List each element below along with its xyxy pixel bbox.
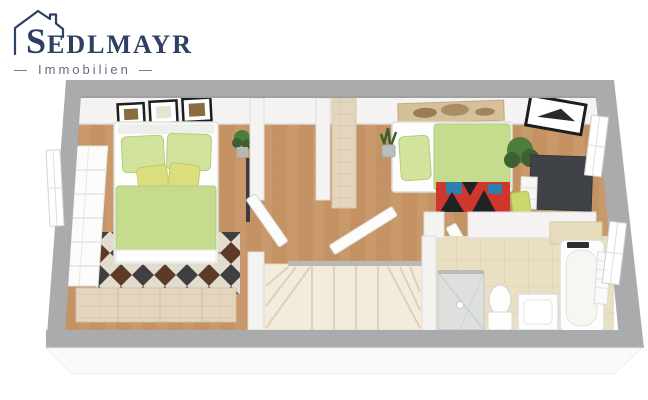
wall-bedroom2-bathroom-left: [424, 212, 444, 238]
stair-nosing: [288, 261, 422, 266]
wall-hall-bedroom2: [316, 98, 330, 200]
south-wall: [46, 330, 642, 348]
logo-tagline: — Immobilien —: [10, 62, 190, 77]
patterned-rug: [436, 182, 510, 212]
sideboard: [76, 288, 236, 322]
pillow: [399, 135, 432, 181]
sink-vanity: [518, 294, 558, 330]
tagline-text: Immobilien: [38, 62, 131, 77]
desk: [520, 155, 593, 211]
wall-bedroom1-hall-lower: [248, 252, 264, 330]
tagline-dash-left: —: [14, 62, 30, 77]
shower: [438, 270, 484, 330]
single-bed: [392, 122, 512, 192]
radiator-strip: [246, 158, 250, 222]
floor-slab-edge: [46, 348, 642, 374]
toilet: [488, 285, 512, 330]
staircase: [264, 261, 422, 330]
logo-wordmark: SEDLMAYR: [26, 20, 193, 62]
logo-initial: S: [26, 21, 47, 61]
logo-rest: EDLMAYR: [47, 30, 193, 59]
tall-wardrobe: [332, 98, 356, 208]
panoramic-artwork: [398, 100, 505, 124]
north-wall: [66, 80, 596, 98]
duvet: [116, 186, 216, 252]
company-logo: SEDLMAYR — Immobilien —: [10, 12, 190, 77]
double-bed: [114, 122, 218, 264]
wall-bedroom1-hall: [250, 98, 264, 200]
bathtub-tap: [567, 242, 589, 248]
tagline-dash-right: —: [139, 62, 155, 77]
duvet: [434, 124, 510, 190]
wall-stairs-bathroom: [422, 236, 436, 332]
